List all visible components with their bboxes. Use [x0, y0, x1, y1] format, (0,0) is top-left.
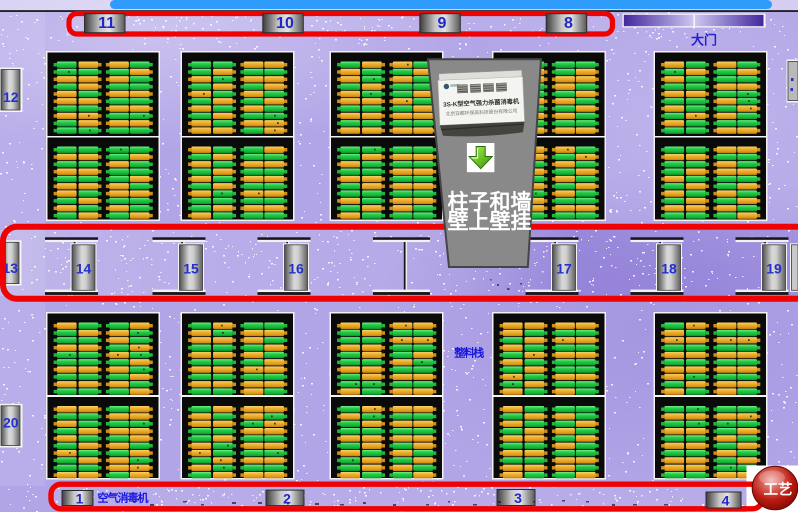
- svg-text:壁上壁挂: 壁上壁挂: [448, 209, 532, 233]
- svg-text:3: 3: [514, 490, 522, 506]
- svg-text:1: 1: [76, 491, 84, 507]
- svg-text:19: 19: [766, 261, 782, 277]
- svg-text:大门: 大门: [691, 33, 717, 48]
- svg-text:9: 9: [438, 15, 447, 32]
- svg-text:10: 10: [276, 15, 294, 32]
- svg-text:8: 8: [564, 15, 573, 32]
- svg-text:18: 18: [661, 261, 677, 277]
- svg-text:4: 4: [722, 493, 730, 509]
- svg-text:14: 14: [76, 261, 92, 277]
- svg-text:11: 11: [98, 15, 115, 32]
- svg-text:17: 17: [556, 261, 572, 277]
- svg-text:工艺: 工艺: [764, 482, 793, 499]
- svg-text:15: 15: [183, 261, 199, 277]
- svg-text:16: 16: [288, 261, 304, 277]
- svg-text:12: 12: [3, 89, 19, 105]
- svg-text:整料栈: 整料栈: [453, 346, 484, 360]
- svg-text:20: 20: [3, 415, 19, 431]
- svg-text:空气消毒机: 空气消毒机: [98, 491, 149, 505]
